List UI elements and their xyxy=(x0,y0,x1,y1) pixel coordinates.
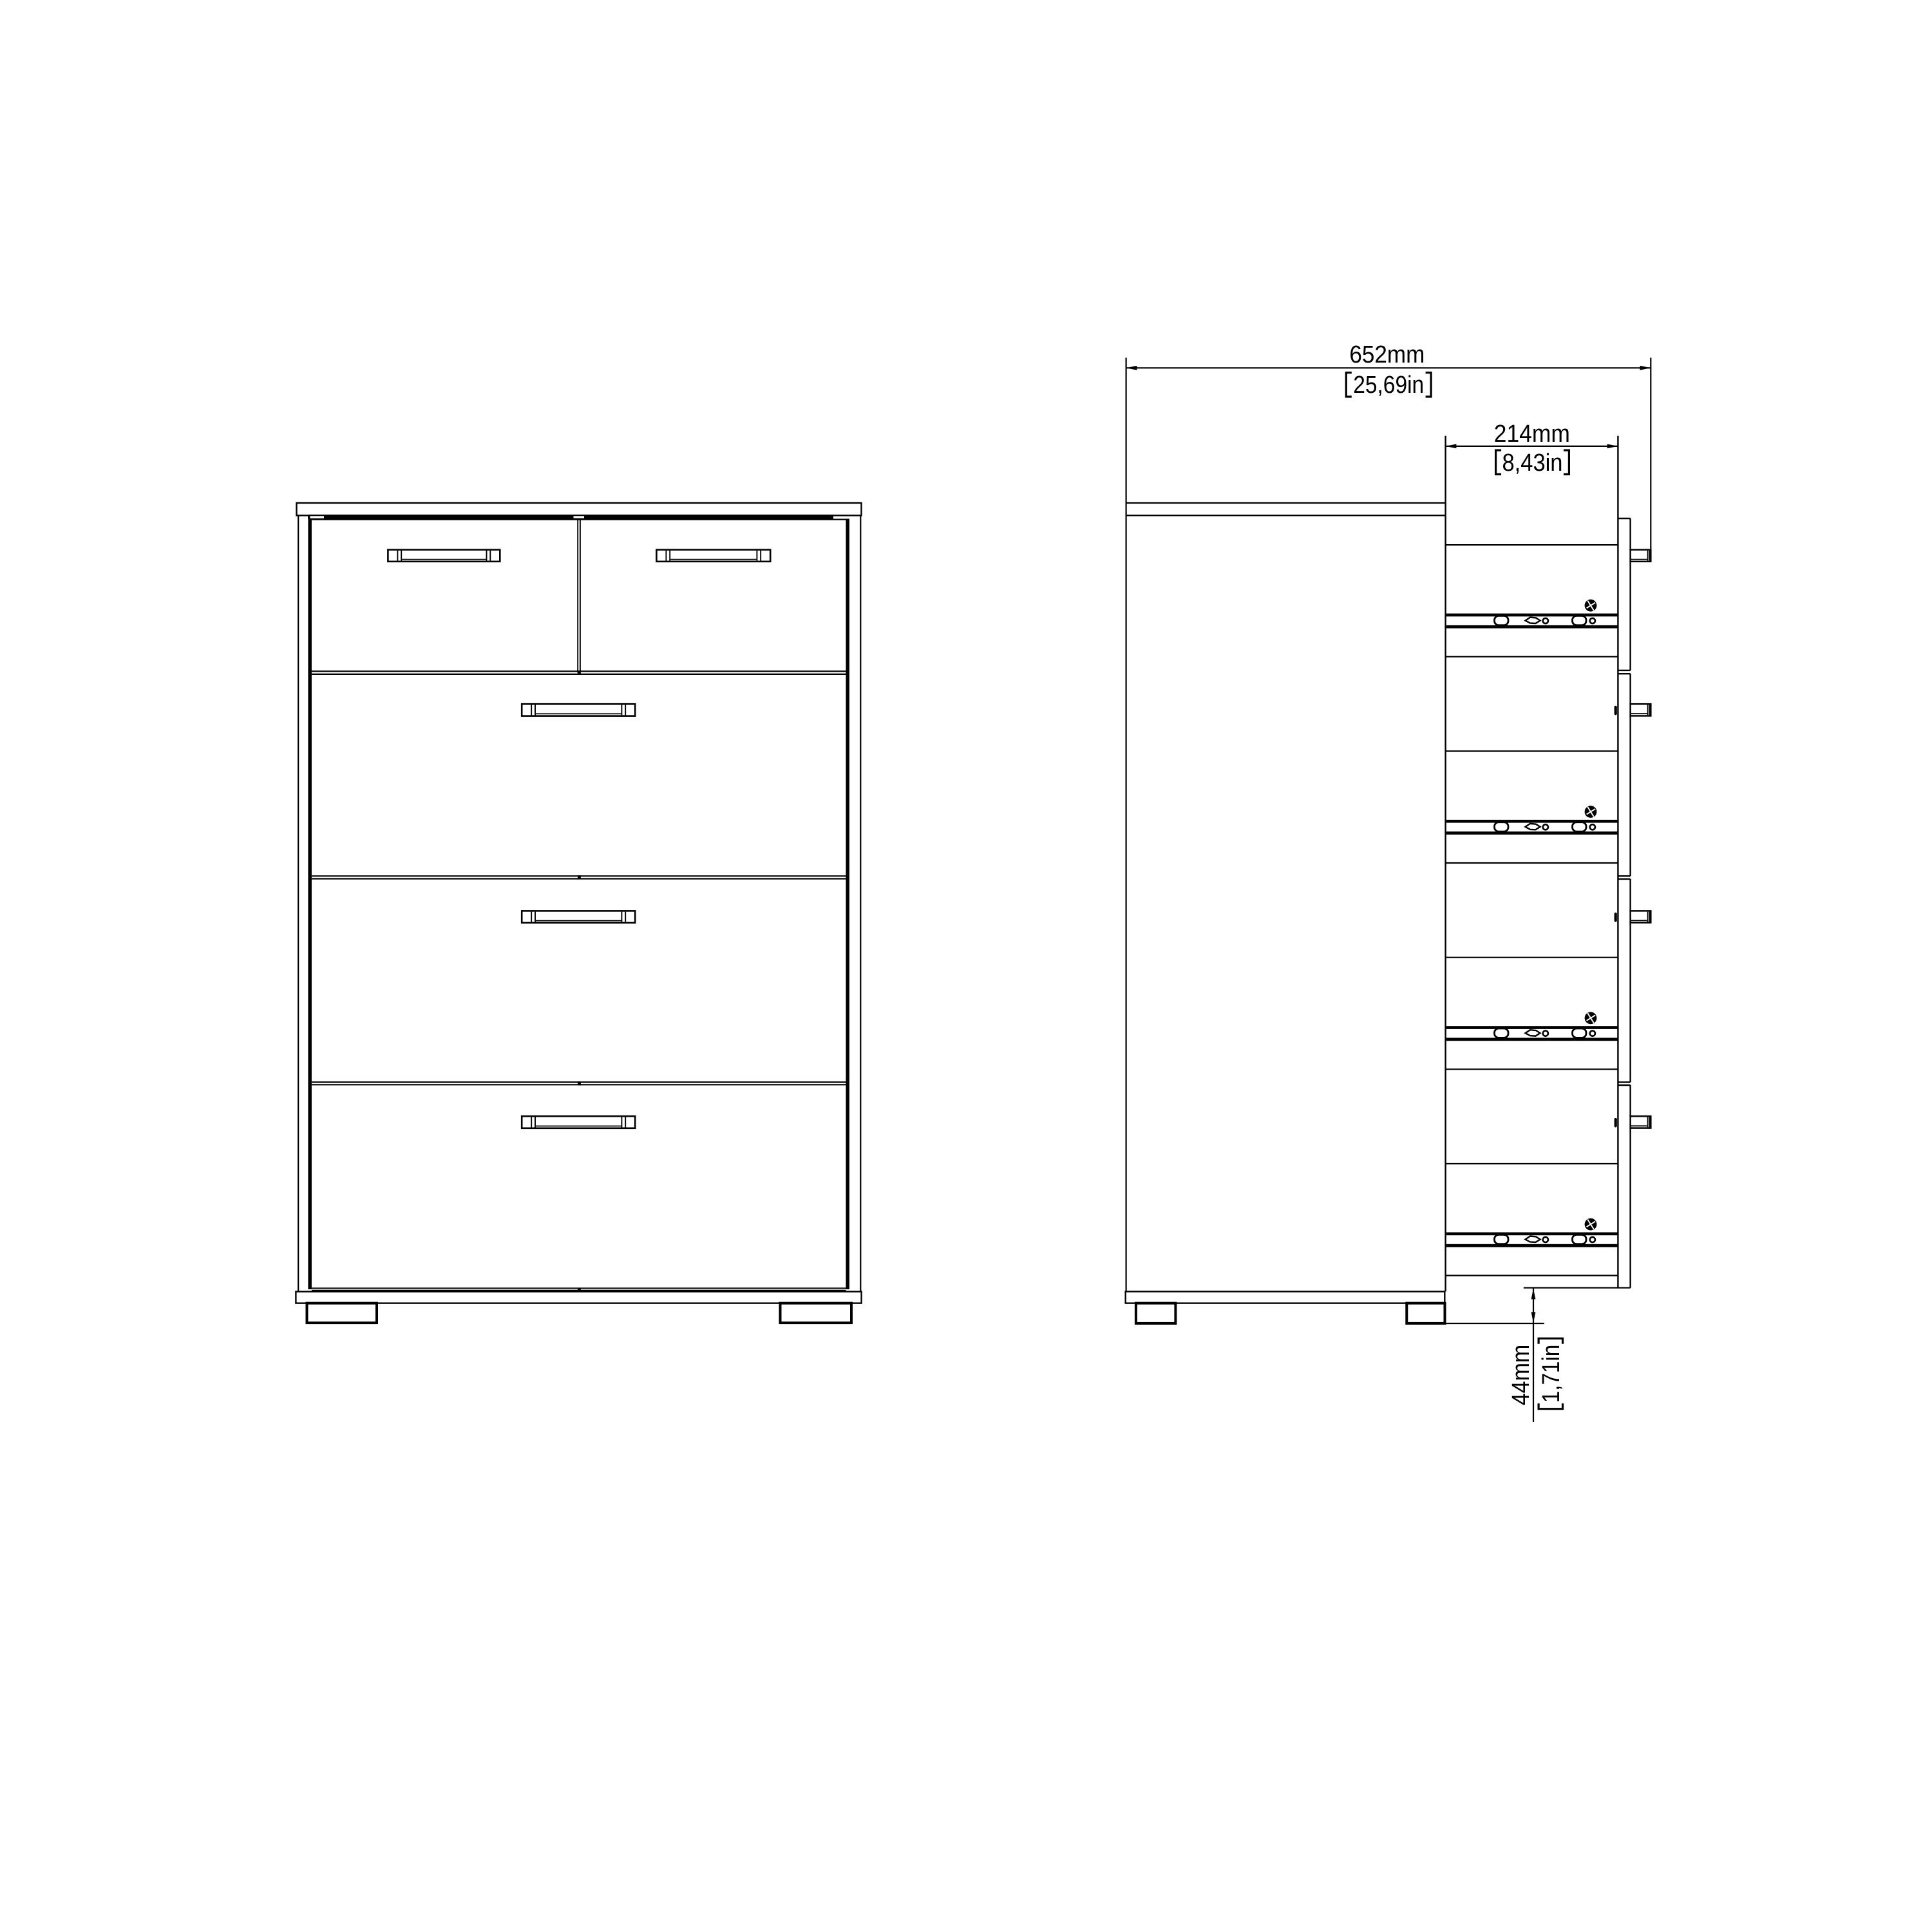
svg-text:25,69in: 25,69in xyxy=(1353,371,1424,398)
svg-text:8,43in: 8,43in xyxy=(1502,449,1563,476)
svg-text:44mm: 44mm xyxy=(1507,1345,1534,1406)
svg-text:214mm: 214mm xyxy=(1494,420,1570,447)
svg-text:1,71in: 1,71in xyxy=(1537,1345,1564,1403)
svg-text:652mm: 652mm xyxy=(1349,341,1425,368)
